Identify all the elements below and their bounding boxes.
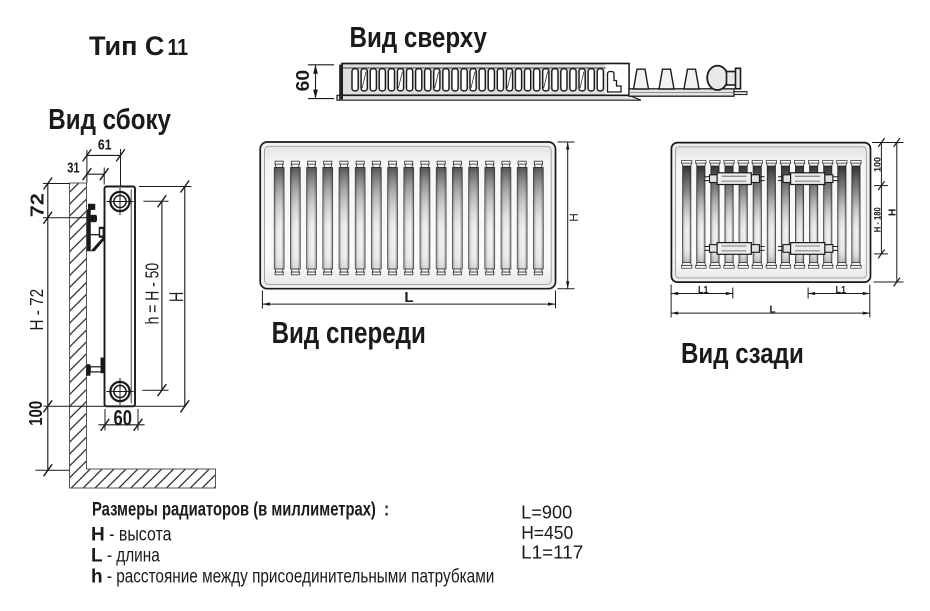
svg-text:Вид сбоку: Вид сбоку xyxy=(48,104,171,136)
svg-text:H: H xyxy=(167,292,188,303)
svg-text:L: L xyxy=(770,305,776,316)
svg-text:60: 60 xyxy=(293,70,313,92)
svg-text:L: L xyxy=(91,546,103,567)
svg-text:H - 180: H - 180 xyxy=(872,207,883,232)
svg-text:L1=117: L1=117 xyxy=(521,542,583,562)
svg-text:H - 72: H - 72 xyxy=(27,289,47,331)
svg-text:31: 31 xyxy=(67,159,79,176)
svg-text:100: 100 xyxy=(872,157,883,172)
svg-text:L1: L1 xyxy=(698,285,709,296)
svg-text:Тип C: Тип C xyxy=(89,31,164,61)
svg-text:- высота: - высота xyxy=(105,525,172,546)
svg-text:- расстояние между присоединит: - расстояние между присоединительными па… xyxy=(103,567,495,588)
svg-text:72: 72 xyxy=(27,193,47,217)
svg-text:61: 61 xyxy=(98,137,112,154)
svg-text:H: H xyxy=(886,209,898,217)
svg-text:h = H - 50: h = H - 50 xyxy=(143,263,163,325)
svg-text:L1: L1 xyxy=(836,285,847,296)
svg-text:11: 11 xyxy=(168,34,189,60)
svg-text:- длина: - длина xyxy=(103,546,161,567)
svg-text:Вид сверху: Вид сверху xyxy=(350,22,488,54)
svg-text:h: h xyxy=(91,567,103,588)
svg-text:H=450: H=450 xyxy=(521,523,573,543)
svg-text:60: 60 xyxy=(114,406,132,431)
svg-text:Размеры радиаторов (в миллимет: Размеры радиаторов (в миллиметрах) : xyxy=(92,500,389,521)
svg-text:100: 100 xyxy=(26,401,46,426)
svg-text:Вид спереди: Вид спереди xyxy=(272,315,426,350)
svg-text:L=900: L=900 xyxy=(521,503,572,523)
svg-text:H: H xyxy=(91,525,105,546)
svg-text:L: L xyxy=(404,289,413,306)
svg-text:Вид сзади: Вид сзади xyxy=(681,338,804,370)
svg-text:H: H xyxy=(567,213,581,222)
